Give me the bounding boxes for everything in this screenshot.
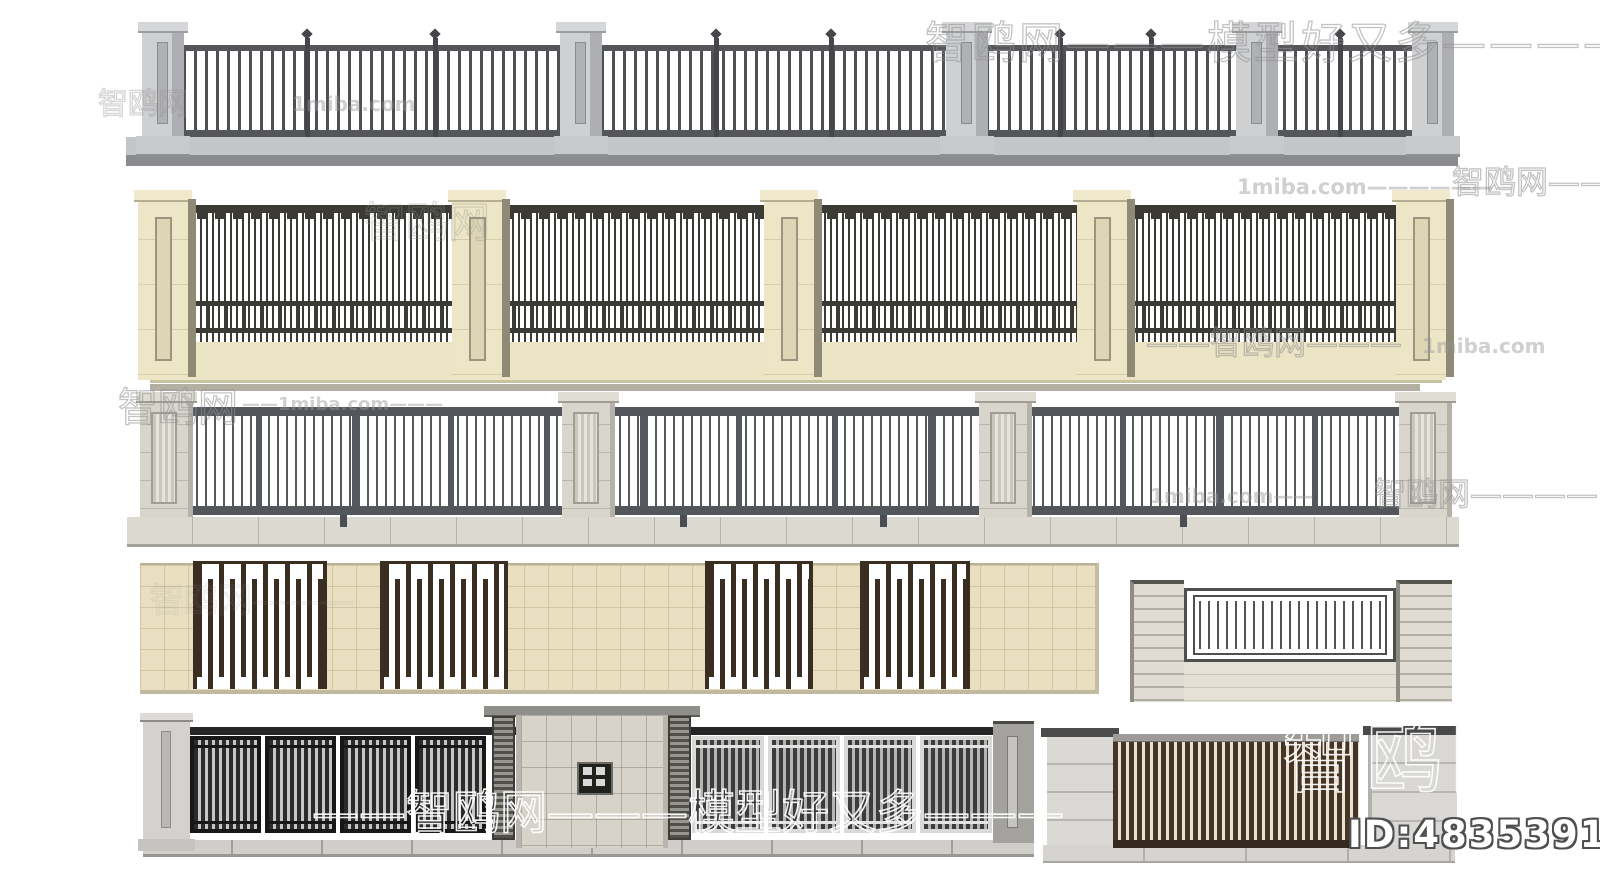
pillar-flute bbox=[151, 412, 177, 504]
fence1-pillar bbox=[1236, 26, 1278, 140]
fence7-right-cap bbox=[1363, 726, 1457, 735]
fence4-fretwork-screen bbox=[705, 561, 813, 689]
pillar-groove bbox=[1427, 42, 1438, 124]
fence4-fretwork-screen bbox=[193, 561, 327, 689]
watermark-site-row2-right: 1miba.com—————— bbox=[1237, 177, 1493, 198]
fence6-light-frame-panel bbox=[692, 736, 764, 833]
fence1-pillar bbox=[560, 26, 602, 140]
watermark-brand-row2-edge: 智鸥网—— bbox=[1452, 166, 1600, 198]
fence6-light-frame-panel bbox=[920, 736, 992, 833]
fence3-top-rail bbox=[160, 407, 1442, 416]
pillar-recess bbox=[1007, 736, 1018, 828]
fence6-left-pillar bbox=[143, 717, 190, 840]
fence4-fretwork-screen bbox=[860, 561, 970, 689]
fence7-wood-slats bbox=[1113, 742, 1359, 848]
fence1-post bbox=[1149, 38, 1154, 137]
fence7-left-marble-pillar bbox=[1047, 737, 1117, 845]
pillar-recess bbox=[1094, 217, 1111, 361]
fence7-left-cap bbox=[1041, 728, 1119, 737]
fence3-pillar bbox=[140, 397, 193, 517]
pillar-flute bbox=[1410, 412, 1436, 504]
fence5-pillar bbox=[1396, 580, 1452, 702]
fence3-support bbox=[1180, 515, 1187, 527]
pillar-recess bbox=[781, 217, 798, 361]
fence5-base-wall bbox=[1184, 662, 1396, 702]
fence7-top-rail bbox=[1113, 734, 1359, 742]
pillar-groove bbox=[961, 42, 972, 124]
gate-emblem-plaque bbox=[577, 762, 613, 795]
fence5-pillar bbox=[1130, 580, 1184, 702]
fence6-light-frame-panel bbox=[844, 736, 916, 833]
gate-emblem-pattern bbox=[583, 767, 605, 786]
fence2-pillar bbox=[452, 195, 502, 380]
pillar-recess bbox=[469, 217, 486, 361]
fence1-pillar bbox=[1412, 26, 1454, 140]
fence3-support bbox=[880, 515, 887, 527]
pillar-groove bbox=[157, 42, 168, 124]
fence6-ribbed-column bbox=[668, 716, 691, 840]
pillar-flute bbox=[990, 412, 1016, 504]
fence5-vertical-bars bbox=[1199, 601, 1381, 649]
fence6-right-pillar bbox=[993, 721, 1034, 843]
fence3-pillar bbox=[979, 397, 1032, 517]
pillar-flute bbox=[573, 412, 599, 504]
fence6-ribbed-column bbox=[492, 716, 515, 840]
fence5-rail-panel bbox=[1184, 588, 1396, 662]
fence1-post bbox=[714, 38, 719, 137]
pillar-groove bbox=[1251, 42, 1262, 124]
fence3-railing bbox=[160, 407, 1442, 515]
fence4-fretwork-screen bbox=[380, 561, 508, 689]
fence1-post bbox=[433, 38, 438, 137]
fence3-vertical-bars bbox=[160, 416, 1442, 506]
fence3-support bbox=[680, 515, 687, 527]
fence1-pillar bbox=[142, 26, 184, 140]
fence2-pillar bbox=[1396, 195, 1446, 380]
pillar-recess bbox=[1413, 217, 1430, 361]
fence2-shadow bbox=[150, 384, 1420, 391]
fence1-post bbox=[1338, 38, 1343, 137]
fence3-base-wall bbox=[127, 517, 1459, 547]
fence6-dark-panel bbox=[265, 736, 336, 833]
fence1-post bbox=[305, 38, 310, 137]
fence6-gate-wall bbox=[516, 715, 668, 848]
fence2-pillar bbox=[764, 195, 814, 380]
fence1-pillar bbox=[946, 26, 988, 140]
fence1-post bbox=[829, 38, 834, 137]
fence3-bottom-rail bbox=[160, 506, 1442, 515]
fence2-pillar bbox=[1077, 195, 1127, 380]
pillar-groove bbox=[575, 42, 586, 124]
fence1-post bbox=[1058, 38, 1063, 137]
model-preview-canvas: 智鸥网———模型好又多———— 1miba.com 智鸥网 智鸥网 1miba.… bbox=[0, 0, 1600, 896]
fence3-pillar bbox=[562, 397, 615, 517]
fence6-dark-panel bbox=[340, 736, 411, 833]
fence6-dark-panel bbox=[415, 736, 486, 833]
fence6-light-frame-panel bbox=[768, 736, 840, 833]
fence3-pillar bbox=[1399, 397, 1452, 517]
fence2-pillar bbox=[138, 195, 188, 380]
pillar-recess bbox=[155, 217, 172, 361]
fence3-support bbox=[340, 515, 347, 527]
pillar-recess bbox=[161, 731, 171, 828]
fence6-dark-panel bbox=[190, 736, 261, 833]
model-id-overlay: ID:483539197 bbox=[1348, 813, 1600, 856]
